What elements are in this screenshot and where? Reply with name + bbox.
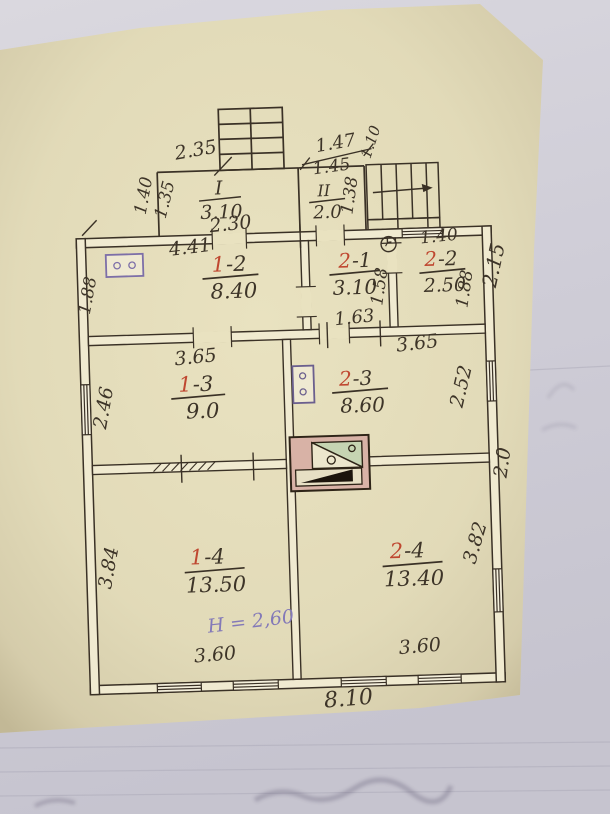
room-area: 13.40	[384, 566, 445, 592]
gas-stove-icon	[292, 366, 314, 404]
window-icon	[233, 680, 278, 690]
room-number-red: 2	[337, 248, 351, 272]
dim: 1.40	[419, 225, 459, 249]
porch-label: I	[214, 177, 224, 199]
room-number-red: 1	[190, 545, 204, 569]
dim: 3.60	[398, 634, 442, 659]
vestibule-label: II	[316, 181, 331, 200]
room-number: -2	[226, 252, 247, 277]
window-icon	[418, 674, 461, 684]
room-number-red: 2	[388, 539, 403, 563]
room-area: 8.40	[210, 278, 257, 303]
room-number-red: 1	[211, 252, 225, 276]
dim: 3.65	[173, 344, 217, 370]
dim-overall-right-mid: 2.0	[489, 446, 515, 480]
room-number: -2	[438, 246, 458, 271]
dim: 3.60	[193, 642, 237, 667]
room-area: 13.50	[186, 572, 247, 598]
dim: 1.63	[333, 305, 375, 330]
room-number: -1	[352, 248, 372, 273]
floor-plan-svg: 2.35 1.40 1.35 I 3.10 2.30 1.47 1.45 II …	[0, 0, 610, 814]
room-number-red: 2	[423, 247, 437, 271]
window-icon	[493, 569, 503, 612]
photo-of-floor-plan: 2.35 1.40 1.35 I 3.10 2.30 1.47 1.45 II …	[0, 0, 610, 814]
dim-porch-bottom: 2.30	[207, 211, 252, 237]
room-number: -3	[192, 372, 213, 397]
window-icon	[486, 361, 496, 401]
furnace-icon	[290, 435, 371, 491]
room-area: 8.60	[340, 392, 386, 417]
room-number: -3	[352, 366, 372, 391]
electric-stove-icon	[106, 254, 144, 277]
window-icon	[157, 682, 201, 692]
room-number-red: 1	[178, 372, 192, 396]
room-number: -4	[204, 544, 225, 569]
room-number-red: 2	[338, 366, 352, 390]
dim-overall-bottom: 8.10	[323, 685, 374, 714]
room-number: -4	[404, 538, 425, 563]
room-area: 9.0	[186, 399, 220, 424]
